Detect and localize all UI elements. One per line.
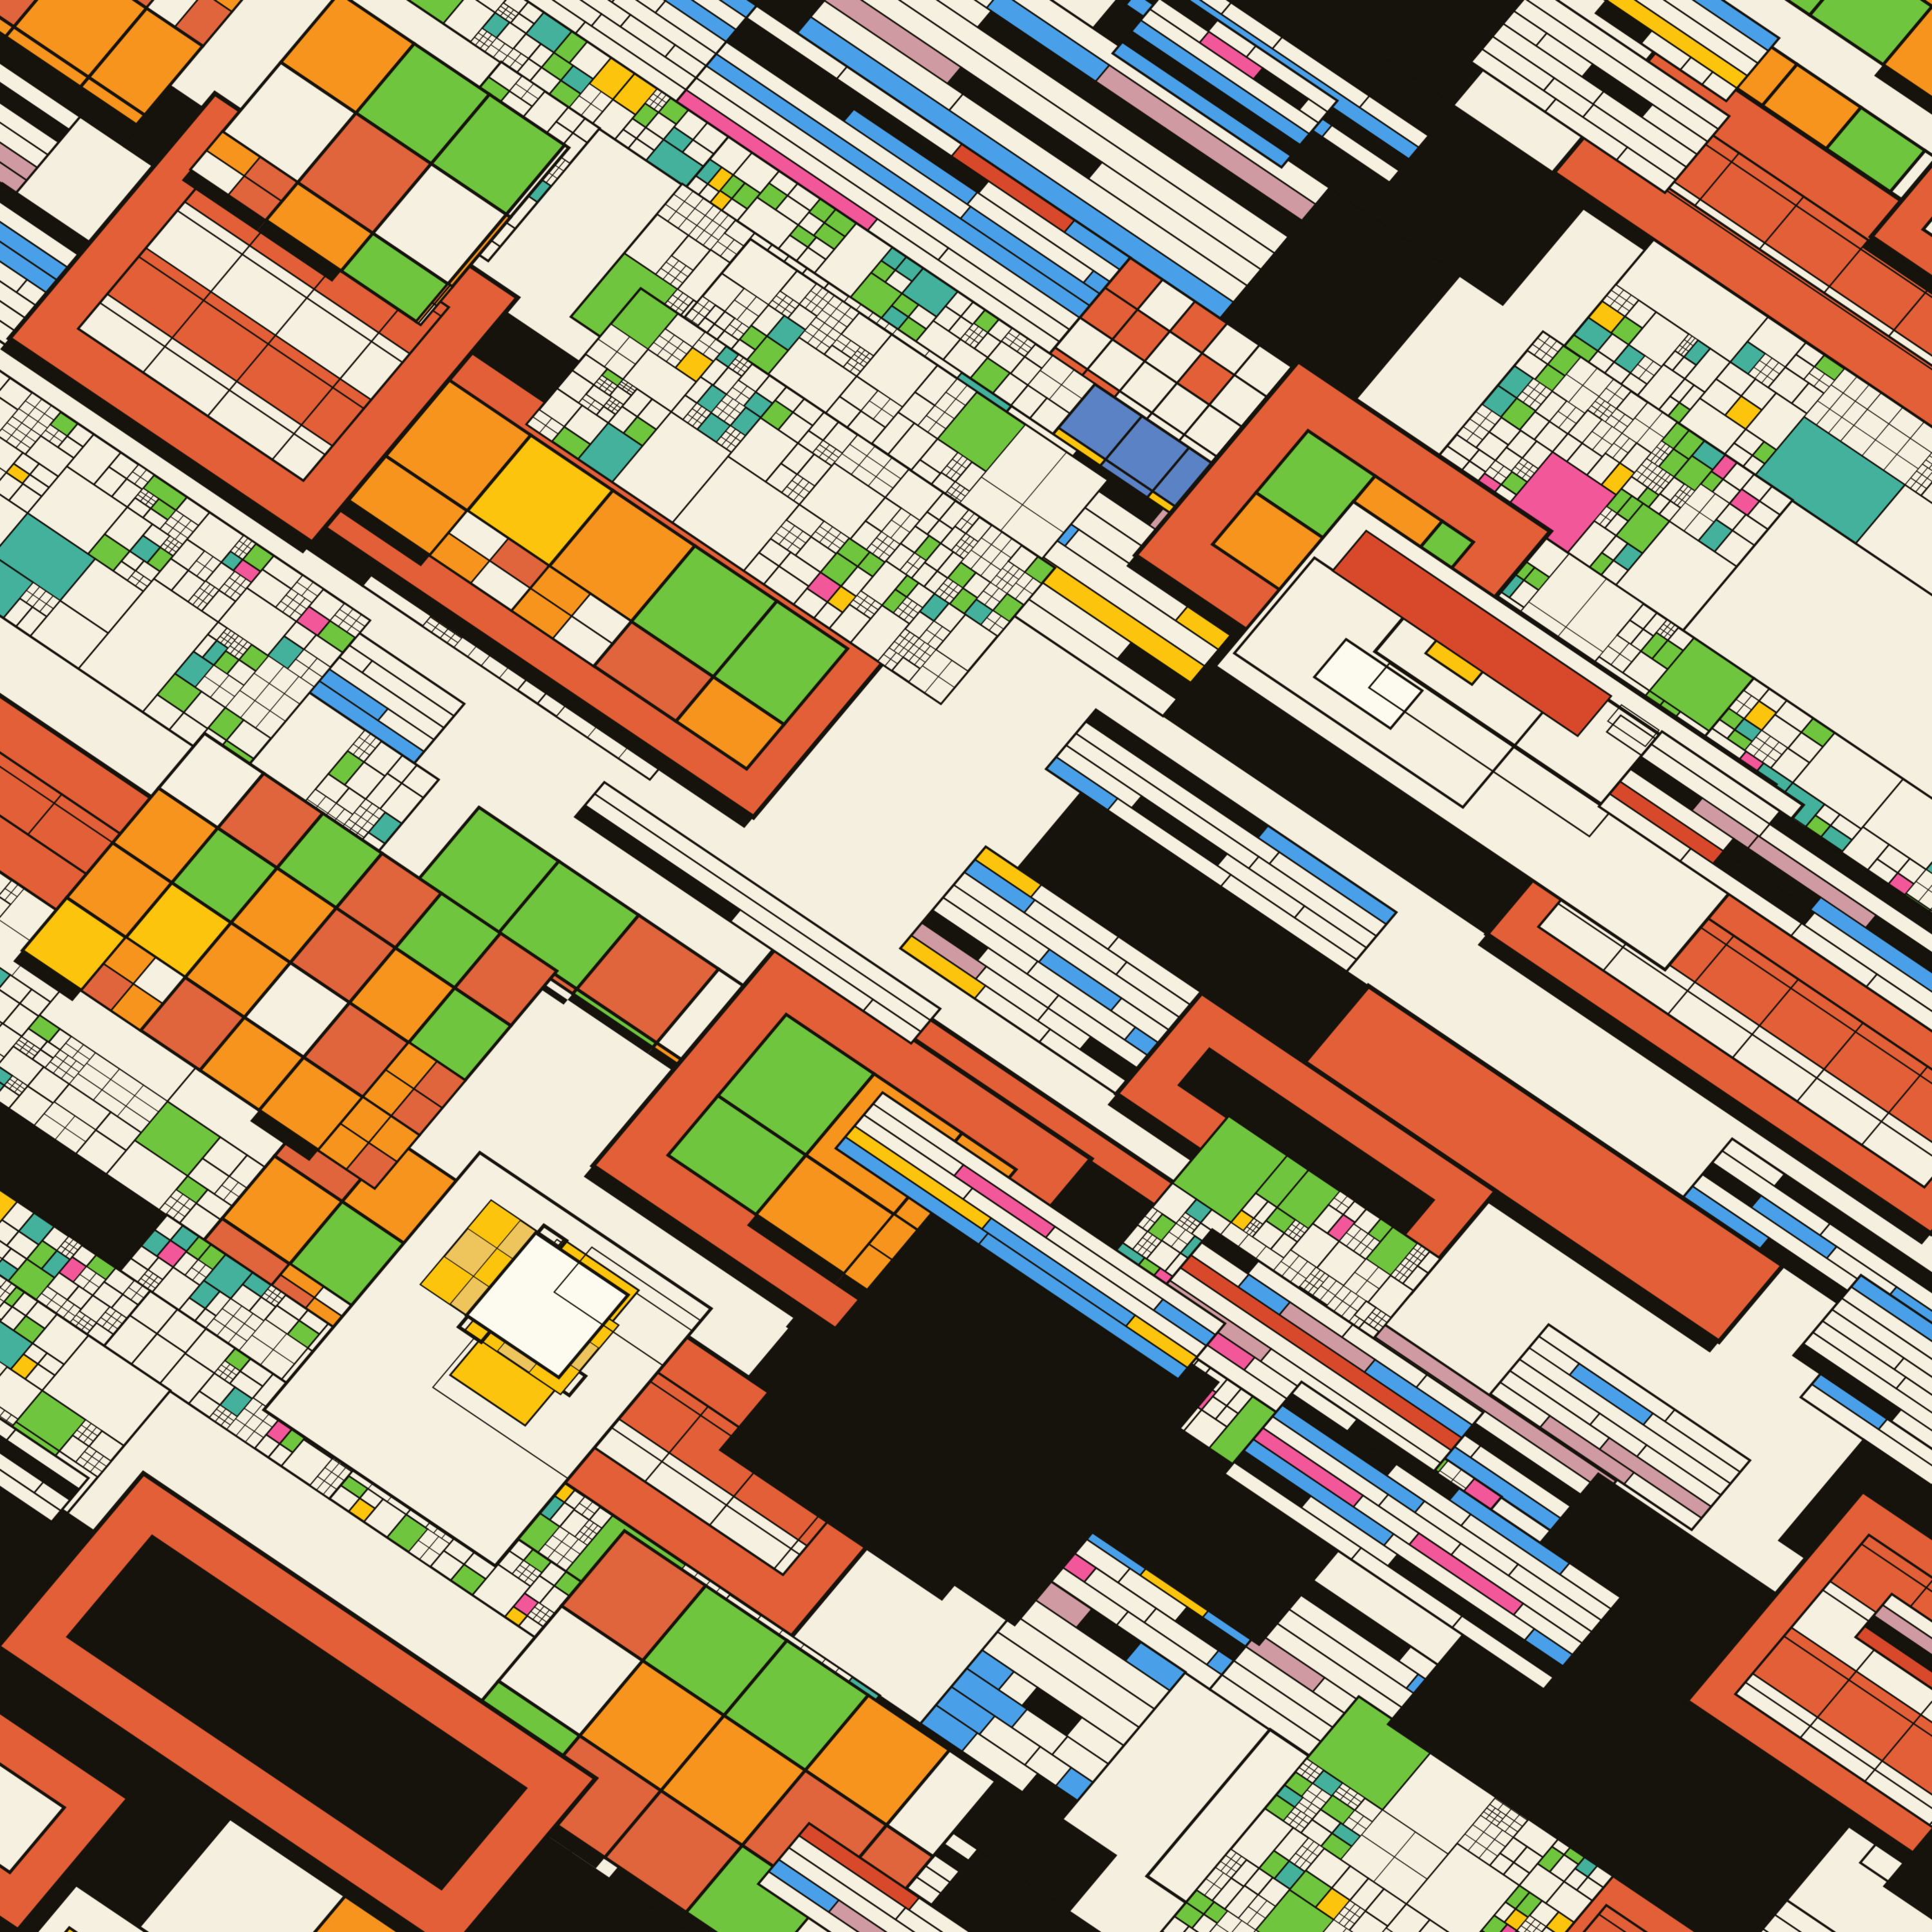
artwork-stage [0,0,1932,1932]
generative-isometric-block-city-artwork [0,0,1932,1932]
